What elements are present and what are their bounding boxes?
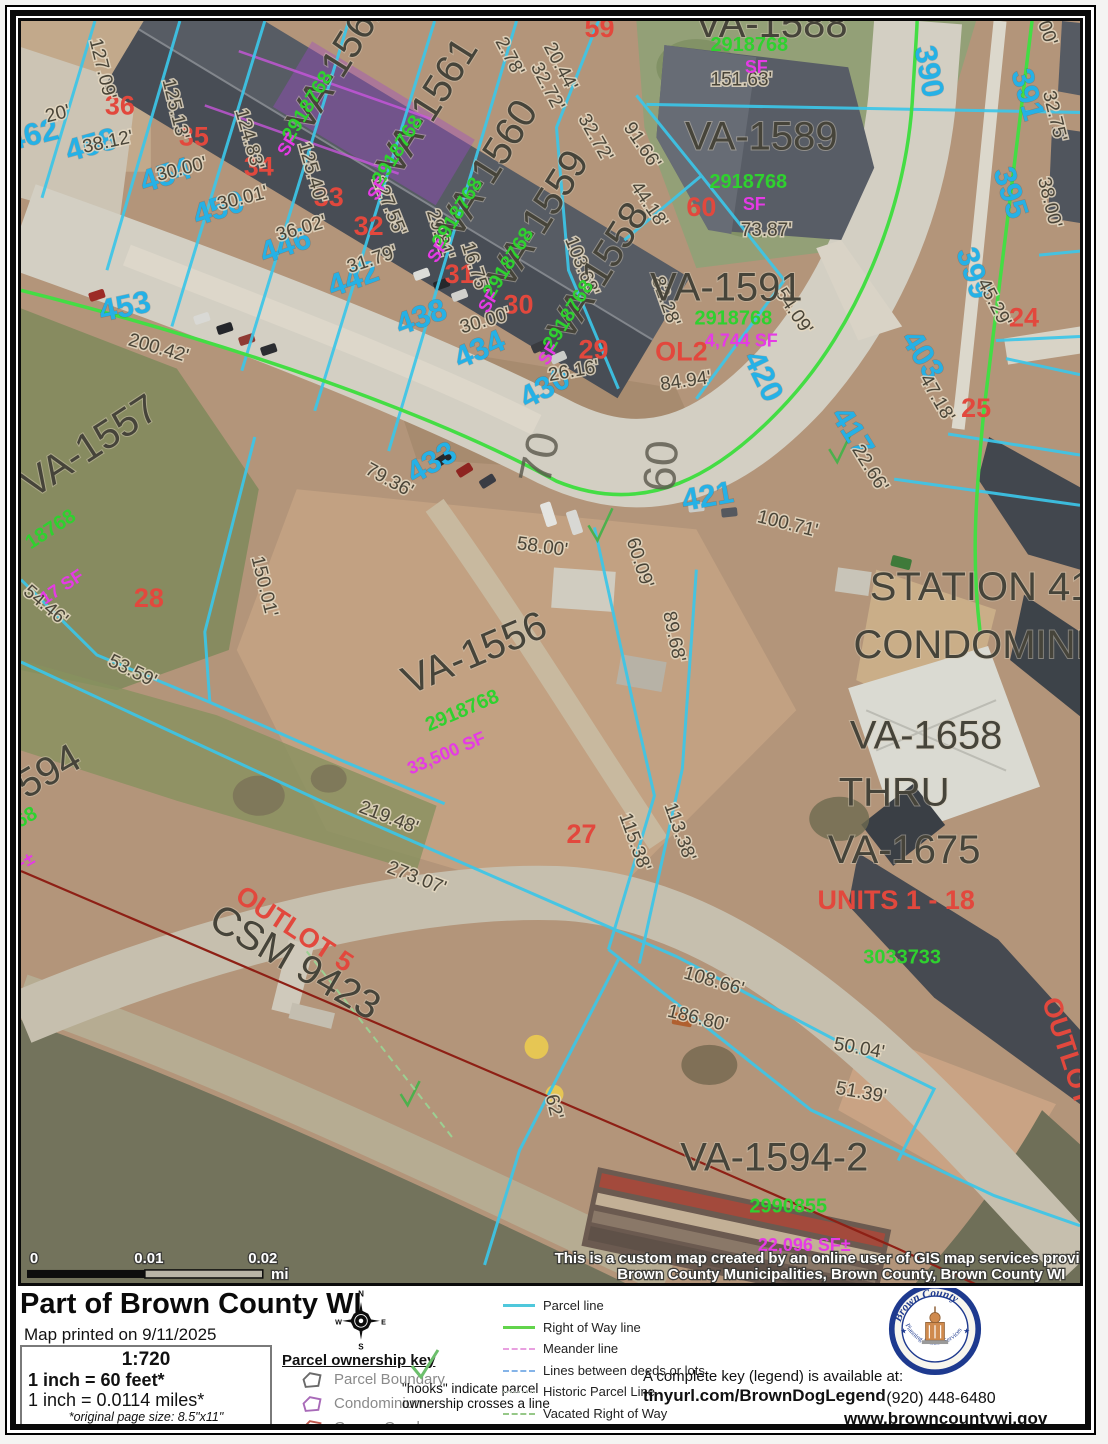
legend-swatch [503,1304,535,1307]
map-label: 2990855 [749,1196,827,1218]
legend-swatch [503,1413,535,1415]
svg-text:S: S [358,1343,364,1352]
map-label: OL2 [655,337,707,367]
map-label: 70 [508,427,569,488]
legend-item: Meander line [503,1341,618,1356]
map-label: 2918768 [694,307,772,329]
scale-bar [27,1270,263,1278]
legend-item: Vacated Right of Way [503,1406,667,1421]
condominium-icon [300,1394,324,1413]
gap-overlap-icon [300,1418,324,1424]
map-label: 28 [134,583,164,613]
map-label: Brown County Municipalities, Brown Count… [617,1266,1065,1283]
svg-text:★: ★ [963,1327,970,1336]
map-label: 60 [633,439,688,494]
scale-miles: 1 inch = 0.0114 miles* [22,1390,270,1410]
page-title: Part of Brown County WI [20,1288,362,1321]
map-label: 32 [354,211,384,241]
map-label: VA-1675 [828,828,981,872]
map-label: 23 [1079,206,1080,236]
map-label: 3033733 [863,946,941,968]
map-label: SF [743,194,766,214]
map-label: THRU [839,771,950,815]
phone-number: (920) 448-6480 [871,1390,1011,1408]
map-label: CONDOMINIUM [853,623,1080,667]
map-label: 0.01 [134,1250,163,1267]
map-label: VA-1658 [850,713,1003,757]
legend-swatch [503,1348,535,1350]
complete-key-text: A complete key (legend) is available at: [643,1368,903,1385]
legend-swatch [503,1391,535,1393]
svg-text:N: N [358,1290,364,1299]
svg-text:★: ★ [900,1327,907,1336]
scale-note-size: *original page size: 8.5"x11" [22,1410,270,1424]
scale-feet: 1 inch = 60 feet* [22,1370,270,1390]
key-item-label: Gap or Overlap [334,1419,437,1424]
scale-ratio: 1:720 [22,1349,270,1370]
svg-text:W: W [335,1318,342,1327]
map-label: This is a custom map created by an onlin… [555,1250,1080,1267]
key-item-gap-overlap: Gap or Overlap [300,1418,437,1424]
map-label: UNITS 1 - 18 [817,885,974,915]
map-frame: 4624584544504464424384344304534334214204… [18,18,1083,1286]
map-label: 2918768 [710,34,788,56]
scale-box: 1:720 1 inch = 60 feet* 1 inch = 0.0114 … [20,1345,272,1424]
map-label: VA-1594-2 [680,1135,868,1179]
map-label: mi [271,1266,288,1283]
map-label: 60 [686,192,716,222]
legend-item: Right of Way line [503,1320,641,1335]
complete-key-url: tinyurl.com/BrownDogLegend [643,1386,886,1406]
map-label: 2918768 [709,171,787,193]
map-label: 4,744 SF [705,331,778,351]
website-url: www.browncountywi.gov [844,1409,1047,1424]
map-label: 0.02 [248,1250,277,1267]
legend-item: Historic Parcel Line [503,1384,655,1399]
legend-swatch [503,1370,535,1372]
sheet-inner-frame: 4624584544504464424384344304534334214204… [10,10,1091,1430]
map-label: 25 [961,393,991,423]
svg-text:E: E [381,1318,386,1327]
print-date: Map printed on 9/11/2025 [24,1325,217,1345]
legend-swatch [503,1326,535,1329]
brown-county-logo: Brown County Planning & Land Services ★ … [888,1288,982,1376]
parcel-boundary-icon [300,1370,324,1389]
compass-rose-icon: N W E S [334,1288,388,1352]
map-label: VA-1591 [650,265,803,309]
map-label: SF [745,57,768,77]
legend-item: Parcel line [503,1298,604,1313]
map-sheet: 4624584544504464424384344304534334214204… [5,5,1096,1435]
map-label: 59 [584,21,614,43]
map-canvas: 4624584544504464424384344304534334214204… [21,21,1080,1283]
map-label: 73.87' [741,220,792,241]
map-label: VA-1589 [685,115,838,159]
footer: Part of Brown County WI Map printed on 9… [16,1288,1085,1424]
map-label: 27 [566,819,596,849]
map-label: STATION 41 [870,565,1080,609]
map-label: 0 [30,1250,38,1267]
hooks-check-icon [408,1348,442,1380]
